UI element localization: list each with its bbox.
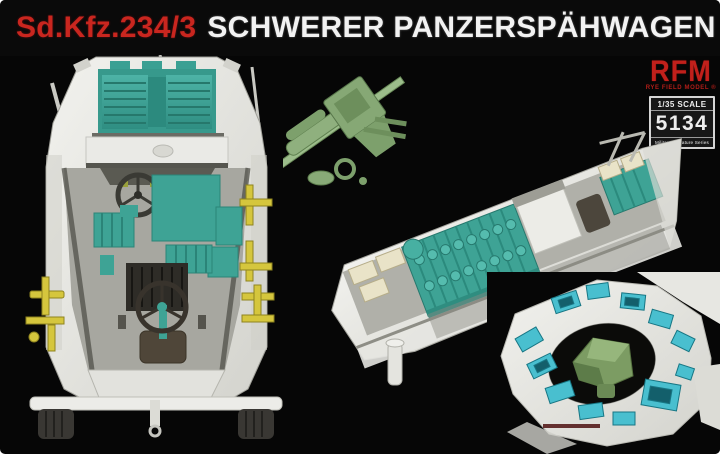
base-plate [308, 171, 334, 185]
interior-inset-photo [487, 272, 720, 454]
support-stand [386, 339, 404, 385]
rfm-logo: RFM RYE FIELD MODEL ® [644, 57, 718, 91]
teal-seat-left [94, 213, 134, 247]
gun-mount [283, 57, 418, 192]
roof-panel [86, 137, 228, 168]
crew-compartment [64, 168, 248, 370]
badge-scale: 1/35 SCALE [651, 98, 713, 111]
rfm-logo-text: RFM [641, 57, 720, 87]
hatch [153, 145, 173, 157]
gunner-seat-ring [336, 160, 354, 178]
top-view-photo [0, 55, 295, 454]
kit-name: SCHWERER PANZERSPÄHWAGEN [207, 11, 715, 45]
box-art: Sd.Kfz.234/3 SCHWERER PANZERSPÄHWAGEN RF… [0, 0, 720, 454]
teal-floor-panel [152, 175, 220, 241]
engine-block [98, 61, 216, 133]
kit-code: Sd.Kfz.234/3 [16, 11, 196, 45]
bulkhead [92, 133, 224, 137]
gun-assembly-photo [283, 57, 418, 192]
title-bar: Sd.Kfz.234/3 SCHWERER PANZERSPÄHWAGEN [0, 0, 720, 56]
tow-hook [150, 426, 160, 436]
